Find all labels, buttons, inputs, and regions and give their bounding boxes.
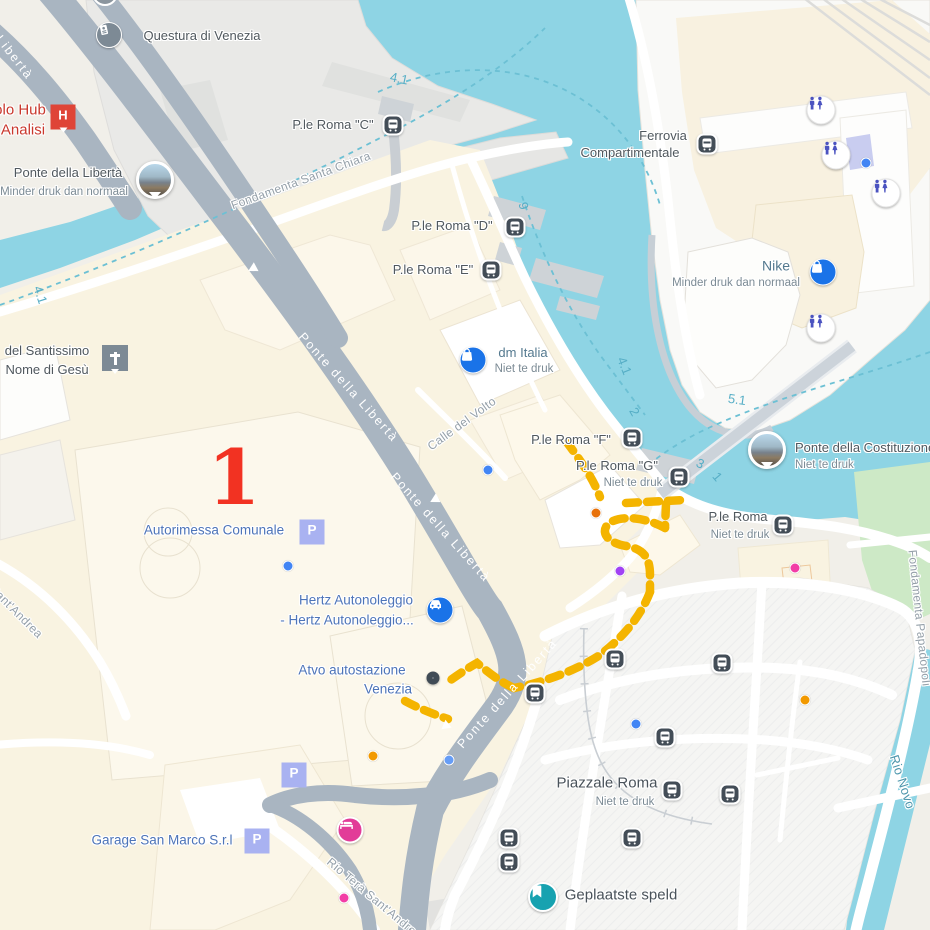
poi-dot-orange[interactable] — [591, 508, 602, 519]
poi-dot-orange[interactable] — [800, 695, 811, 706]
poi-label-garage-san-marco[interactable]: Garage San Marco S.r.l — [91, 833, 232, 850]
busyness-ponte-liberta: Minder druk dan normaal — [0, 185, 128, 199]
photo-pin-ponte-costituzione[interactable] — [748, 431, 786, 469]
bus-stop-icon-roma-e[interactable] — [481, 260, 502, 281]
stop-label-ple-roma-g[interactable]: P.le Roma "G" — [576, 458, 658, 474]
google-maps-canvas[interactable]: Questura di Venezia olo Hub Analisi Pont… — [0, 0, 930, 930]
bus-stop-icon[interactable] — [525, 683, 546, 704]
stop-label-ple-roma[interactable]: P.le Roma — [708, 509, 767, 525]
poi-dot-pink[interactable] — [339, 893, 350, 904]
poi-label-costituzione[interactable]: Ponte della Costituzione — [795, 440, 930, 456]
stop-label-ferrovia-line2[interactable]: Compartimentale — [581, 145, 680, 161]
stop-label-ple-roma-d[interactable]: P.le Roma "D" — [411, 218, 492, 234]
poi-label-santissimo-line1[interactable]: del Santissimo — [5, 343, 90, 359]
route-endpoint-circle — [427, 672, 440, 685]
poi-label-hertz-line1[interactable]: Hertz Autonoleggio — [299, 593, 413, 610]
busyness-dm-italia: Niet te druk — [495, 362, 554, 376]
toilets-icon[interactable] — [807, 314, 836, 343]
stop-label-ferrovia-line1[interactable]: Ferrovia — [639, 128, 687, 144]
bus-stop-icon[interactable] — [662, 780, 683, 801]
bus-stop-icon[interactable] — [622, 828, 643, 849]
dropped-pin-icon[interactable] — [528, 882, 558, 912]
bus-stop-icon[interactable] — [499, 828, 520, 849]
busyness-ple-roma-g: Niet te druk — [604, 476, 663, 490]
bus-stop-icon[interactable] — [712, 653, 733, 674]
bus-stop-icon-roma-f[interactable] — [622, 428, 643, 449]
police-badge-icon[interactable] — [96, 22, 122, 48]
stop-label-ple-roma-e[interactable]: P.le Roma "E" — [393, 262, 474, 278]
photo-pin-ponte-liberta[interactable] — [136, 161, 174, 199]
bus-stop-icon-roma-c[interactable] — [383, 115, 404, 136]
toilets-icon[interactable] — [822, 141, 851, 170]
hotel-bed-icon[interactable] — [337, 817, 364, 844]
map-base — [0, 0, 930, 930]
poi-dot-purple[interactable] — [615, 566, 626, 577]
busyness-costituzione: Niet te druk — [795, 458, 854, 472]
shopping-bag-icon-nike[interactable] — [810, 259, 837, 286]
poi-dot-blue[interactable] — [483, 465, 494, 476]
parking-icon-autorimessa[interactable]: P — [300, 520, 325, 545]
poi-dot-blue[interactable] — [283, 561, 294, 572]
hospital-icon[interactable]: H — [51, 105, 76, 130]
poi-label-ponte-liberta[interactable]: Ponte della Libertà — [14, 165, 122, 181]
busyness-nike: Minder druk dan normaal — [672, 276, 800, 290]
poi-label-santissimo-line2[interactable]: Nome di Gesù — [5, 362, 88, 378]
poi-label-geplaatste-speld[interactable]: Geplaatste speld — [565, 887, 678, 906]
bus-stop-icon[interactable] — [655, 727, 676, 748]
bus-stop-icon-roma-g[interactable] — [669, 467, 690, 488]
busyness-piazzale-roma: Niet te druk — [596, 795, 655, 809]
poi-dot-orange[interactable] — [368, 751, 379, 762]
stop-label-ple-roma-c[interactable]: P.le Roma "C" — [292, 117, 373, 133]
poi-label-dm-italia[interactable]: dm Italia — [498, 345, 547, 361]
car-rental-icon-hertz[interactable] — [427, 597, 454, 624]
parking-icon[interactable]: P — [282, 763, 307, 788]
poi-dot-blue[interactable] — [861, 158, 872, 169]
poi-dot-pink[interactable] — [790, 563, 801, 574]
annotation-number-marker: 1 — [208, 440, 261, 516]
poi-label-atvo-line2[interactable]: Venezia — [364, 682, 412, 699]
poi-label-hospital-line1[interactable]: olo Hub — [0, 102, 46, 121]
bus-stop-icon[interactable] — [499, 852, 520, 873]
bus-stop-icon-ferrovia[interactable] — [697, 134, 718, 155]
poi-label-hospital-line2[interactable]: Analisi — [1, 122, 45, 141]
poi-label-piazzale-roma[interactable]: Piazzale Roma — [557, 775, 658, 794]
bus-stop-icon[interactable] — [605, 649, 626, 670]
poi-label-hertz-line2[interactable]: - Hertz Autonoleggio... — [280, 613, 414, 630]
toilets-icon[interactable] — [807, 96, 836, 125]
poi-label-atvo-line1[interactable]: Atvo autostazione — [298, 663, 405, 680]
poi-label-nike[interactable]: Nike — [762, 257, 790, 275]
parking-icon-garage[interactable]: P — [245, 829, 270, 854]
water-depth: 5.1 — [727, 391, 747, 410]
church-cross-icon[interactable] — [102, 345, 128, 371]
busyness-ple-roma: Niet te druk — [711, 528, 770, 542]
toilets-icon[interactable] — [872, 179, 901, 208]
poi-dot-blue[interactable] — [444, 755, 455, 766]
bus-stop-icon-roma-d[interactable] — [505, 217, 526, 238]
poi-label-questura[interactable]: Questura di Venezia — [143, 28, 260, 44]
poi-dot-blue[interactable] — [631, 719, 642, 730]
water-depth: 4.1 — [388, 69, 409, 89]
poi-label-autorimessa[interactable]: Autorimessa Comunale — [144, 523, 284, 540]
bus-stop-icon-roma[interactable] — [773, 515, 794, 536]
stop-label-ple-roma-f[interactable]: P.le Roma "F" — [531, 432, 611, 448]
shopping-bag-icon-dm[interactable] — [460, 347, 487, 374]
bus-stop-icon[interactable] — [720, 784, 741, 805]
